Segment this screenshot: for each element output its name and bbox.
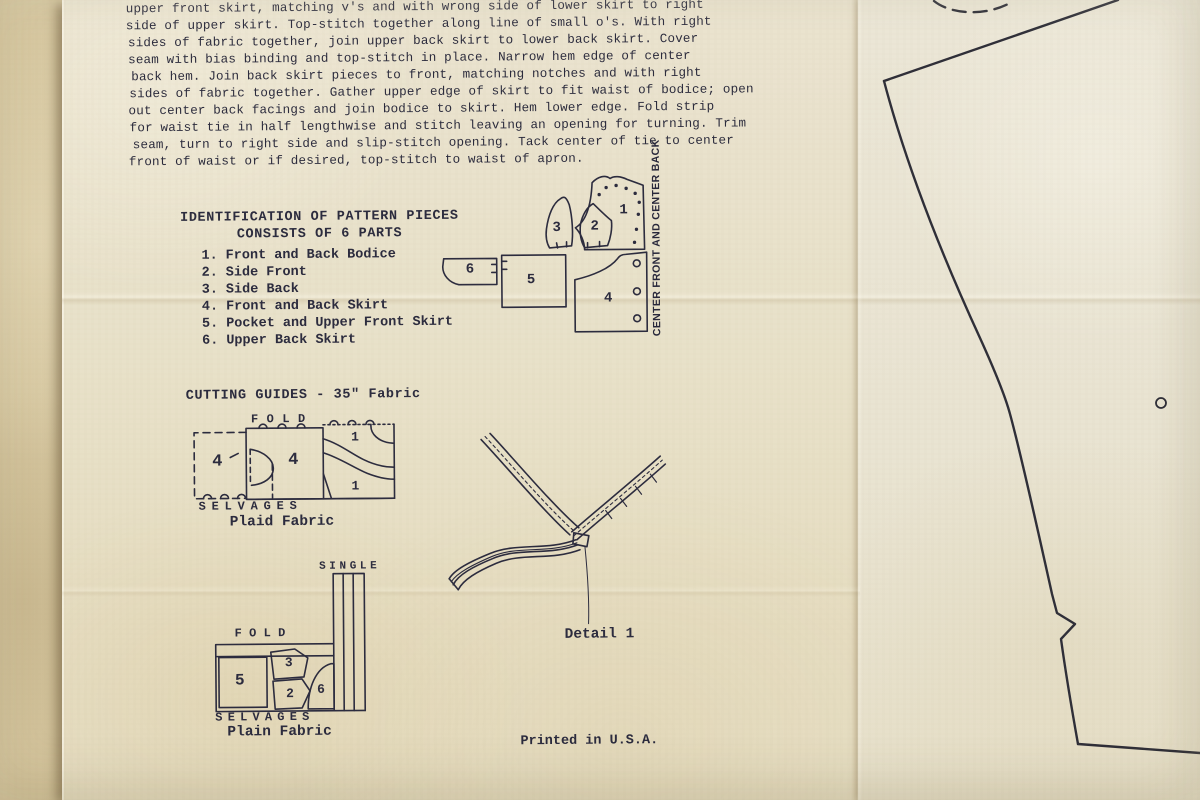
list-item-number: 3. <box>196 284 218 299</box>
list-item-label: Upper Back Skirt <box>226 334 356 350</box>
plaid-piece-1-bottom-label: 1 <box>351 479 359 493</box>
plain-piece-6-label: 6 <box>317 683 325 697</box>
piece-1-number: 1 <box>619 203 628 218</box>
list-item-number: 1. <box>196 250 218 265</box>
instruction-text-line: sides of fabric together, join upper bac… <box>128 33 698 51</box>
list-item-number: 2. <box>196 267 218 282</box>
plain-fabric-caption: Plain Fabric <box>227 725 332 742</box>
plain-piece-5-label: 5 <box>235 672 245 690</box>
plaid-piece-1-top-label: 1 <box>351 430 359 444</box>
identification-subtitle: CONSISTS OF 6 PARTS <box>149 226 489 244</box>
instruction-text-line: out center back facings and join bodice … <box>128 101 714 119</box>
piece-3-number: 3 <box>552 221 561 236</box>
list-item-number: 6. <box>196 335 218 350</box>
detail-1-caption: Detail 1 <box>565 627 635 643</box>
cutting-guides-heading: CUTTING GUIDES - 35" Fabric <box>186 388 421 405</box>
sewing-pattern-instruction-sheet-photo: upper front skirt, matching v's and with… <box>0 0 1200 800</box>
plaid-selvages-label: SELVAGES <box>199 500 303 514</box>
tie-knot <box>573 533 589 547</box>
list-item-label: Front and Back Skirt <box>226 299 388 315</box>
printed-content: upper front skirt, matching v's and with… <box>0 0 1200 800</box>
piece-1-outline <box>575 176 645 250</box>
plaid-piece-4-right-label: 4 <box>288 452 298 471</box>
instruction-text-line: side of upper skirt. Top-stitch together… <box>126 16 712 34</box>
piece-6-number: 6 <box>466 263 475 278</box>
printed-in-usa-label: Printed in U.S.A. <box>520 734 658 750</box>
pieces-identification-drawing <box>442 176 647 333</box>
instruction-text-line: front of waist or if desired, top-stitch… <box>129 153 584 170</box>
label-4-tick <box>230 453 238 457</box>
piece-5-number: 5 <box>527 273 536 288</box>
instruction-text-line: back hem. Join back skirt pieces to fron… <box>131 67 701 85</box>
plaid-fold-label: FOLD <box>251 413 314 427</box>
piece-4-number: 4 <box>604 291 613 306</box>
plaid-fabric-caption: Plaid Fabric <box>230 515 335 532</box>
list-item-number: 4. <box>196 301 218 316</box>
plaid-piece-4-left-label: 4 <box>212 454 222 473</box>
center-front-back-axis-label: CENTER FRONT AND CENTER BACK <box>651 139 664 336</box>
detail-1-drawing <box>448 432 666 625</box>
plain-single-label: SINGLE <box>319 560 380 573</box>
instruction-text-line: seam with bias binding and top-stitch in… <box>128 50 691 68</box>
list-item-label: Front and Back Bodice <box>226 248 396 264</box>
piece-2-number: 2 <box>590 220 599 235</box>
plain-selvages-label: SELVAGES <box>215 711 314 725</box>
pocket-shape <box>250 449 273 485</box>
identification-title: IDENTIFICATION OF PATTERN PIECES <box>149 209 489 227</box>
list-item-label: Pocket and Upper Front Skirt <box>226 316 453 333</box>
plain-fold-label: FOLD <box>235 627 293 641</box>
list-item-label: Side Front <box>226 266 307 281</box>
waist-tie <box>449 540 576 579</box>
plain-piece-3-label: 3 <box>285 656 293 670</box>
list-item-label: Side Back <box>226 283 299 298</box>
list-item-number: 5. <box>196 318 218 333</box>
instruction-text-line: seam, turn to right side and slip-stitch… <box>133 135 734 154</box>
plain-piece-2-label: 2 <box>286 687 294 701</box>
